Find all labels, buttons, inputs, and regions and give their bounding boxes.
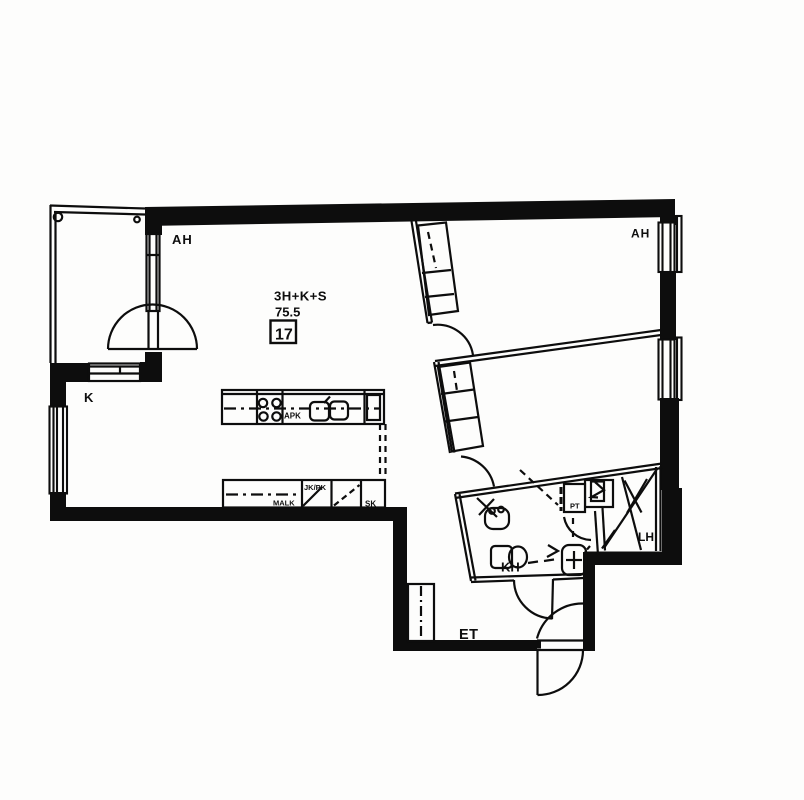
svg-text:75.5: 75.5 [275,305,300,320]
svg-text:AH: AH [172,232,193,247]
svg-text:MALK: MALK [273,499,295,508]
svg-text:JK/PK: JK/PK [304,483,327,492]
svg-text:LH: LH [638,530,654,544]
svg-text:17: 17 [275,327,293,344]
svg-text:K: K [84,390,94,405]
svg-text:SK: SK [365,500,376,509]
svg-text:KH: KH [501,560,520,575]
svg-text:3H+K+S: 3H+K+S [274,289,327,304]
svg-text:APK: APK [284,412,301,421]
svg-text:AH: AH [631,227,650,241]
svg-text:PT: PT [570,502,580,511]
svg-text:ET: ET [459,627,479,643]
